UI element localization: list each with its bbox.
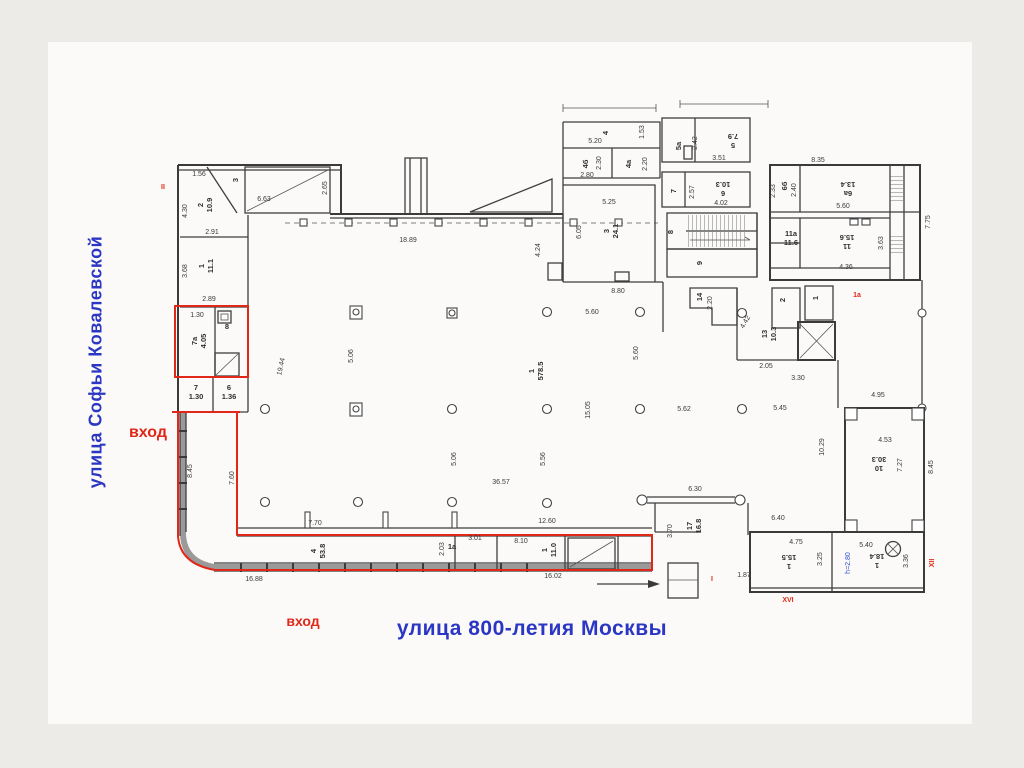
room-label: 1115.6 <box>840 233 855 251</box>
dimension-label: 5.20 <box>588 138 602 145</box>
room-label: 57.9 <box>728 132 738 150</box>
dimension-label: 5.60 <box>633 346 640 360</box>
room-label: 14 <box>695 292 704 301</box>
dimension-label: 5.06 <box>348 349 355 363</box>
room-label: 1 <box>811 296 820 300</box>
dimension-label: 6.30 <box>688 486 702 493</box>
dimension-label: 7.75 <box>925 215 932 229</box>
dimension-label: 4.02 <box>714 200 728 207</box>
dimension-label: 4.75 <box>789 539 803 546</box>
room-label: 7a4.05 <box>190 334 208 349</box>
dimension-label: 2.40 <box>791 183 798 197</box>
dimension-label: 2.80 <box>580 172 594 179</box>
dimension-label: 15.05 <box>585 401 592 419</box>
room-label: 9 <box>695 261 704 265</box>
dimension-label: 1.87 <box>737 572 751 579</box>
dimension-label: 2.03 <box>439 542 446 556</box>
dimension-label: 2.20 <box>642 157 649 171</box>
dimension-label: 3.70 <box>667 524 674 538</box>
dimension-label: 1.30 <box>190 312 204 319</box>
axis-mark: XII <box>929 559 936 568</box>
dimension-label: 8.80 <box>611 288 625 295</box>
floor-plan-svg: 210.9111.137a4.05871.3061.36453.81a111.0… <box>0 0 1024 768</box>
dimension-label: 8.45 <box>187 464 194 478</box>
room-label: 1716.8 <box>685 519 703 534</box>
dimension-label: 2.57 <box>689 185 696 199</box>
room-label: 8 <box>225 322 229 331</box>
dimension-label: 3.36 <box>903 554 910 568</box>
room-label: 4б <box>581 159 590 168</box>
dimension-label: 5.62 <box>677 406 691 413</box>
room-label: 324.1 <box>602 224 620 239</box>
axis-mark: XVI <box>782 597 793 604</box>
room-label: 1030.3 <box>872 455 887 473</box>
dimension-label: 5.45 <box>773 405 787 412</box>
dimension-label: 36.57 <box>492 479 510 486</box>
dimension-label: 2.65 <box>322 181 329 195</box>
dimension-label: 3.63 <box>878 236 885 250</box>
entrance-label-left: вход <box>129 424 167 442</box>
dimension-label: 3.68 <box>182 264 189 278</box>
dimension-label: 12.60 <box>538 518 556 525</box>
room-label: 210.9 <box>196 198 214 213</box>
dimension-label: 2.05 <box>759 363 773 370</box>
room-label: 8 <box>666 230 675 234</box>
room-label: 4 <box>601 130 610 135</box>
dimension-label: 19.44 <box>276 357 287 376</box>
dimension-label: 8.35 <box>811 157 825 164</box>
dimension-label: 7.27 <box>897 458 904 472</box>
dimension-label: 7.70 <box>308 520 322 527</box>
dimension-label: 6.40 <box>771 515 785 522</box>
dimension-label: 8.10 <box>514 538 528 545</box>
dimension-label: 4.30 <box>182 204 189 218</box>
dimension-label: 2.42 <box>692 136 699 150</box>
room-label: 118.4 <box>869 552 884 570</box>
dimension-label: 2.89 <box>202 296 216 303</box>
room-label: 610.3 <box>716 180 731 198</box>
room-label: 5a <box>674 141 683 150</box>
dimension-label: 5.40 <box>859 542 873 549</box>
column-grid <box>261 306 747 508</box>
dimension-label: 3.51 <box>712 155 726 162</box>
dimension-label: 4.36 <box>839 264 853 271</box>
room-label: 111.0 <box>540 543 558 557</box>
dimension-label: 4.95 <box>871 392 885 399</box>
dimension-label: 2.30 <box>596 156 603 170</box>
dimension-label: 8.45 <box>928 460 935 474</box>
room-label: 71.30 <box>189 383 204 401</box>
room-label: 3 <box>231 178 240 182</box>
street-label-bottom: улица 800-летия Москвы <box>397 617 667 641</box>
room-label: 453.8 <box>309 544 327 559</box>
street-label-left: улица Софьи Ковалевской <box>86 236 107 488</box>
room-label: 2 <box>778 298 787 302</box>
dimension-label: 4.53 <box>878 437 892 444</box>
room-label: 4a <box>624 159 633 168</box>
dimension-label: 16.02 <box>544 573 562 580</box>
dimension-label: 5.56 <box>540 452 547 466</box>
room-label: 7 <box>669 189 678 193</box>
room-label: 11a11.6 <box>784 229 798 247</box>
dimension-label: 5.60 <box>836 203 850 210</box>
room-label: 111.1 <box>197 259 215 273</box>
dimension-label: 6.63 <box>257 196 271 203</box>
dimension-label: 4.24 <box>535 243 542 257</box>
dimension-label: 5.06 <box>451 452 458 466</box>
room-label: 6a13.4 <box>840 180 855 198</box>
dimension-label: 3.30 <box>791 375 805 382</box>
dimension-label: 2.20 <box>707 296 714 310</box>
entrance-label-bottom: вход <box>286 613 319 629</box>
dimension-label: 5.60 <box>585 309 599 316</box>
dimension-label: 10.29 <box>819 438 826 456</box>
axis-mark: I <box>711 576 713 583</box>
room-label: 6б <box>780 181 789 190</box>
axis-mark: II <box>161 184 165 191</box>
dimension-label: 1.53 <box>639 125 646 139</box>
room-label: 115.5 <box>782 553 797 571</box>
dimension-label: 7.60 <box>229 471 236 485</box>
dimension-label: 2.33 <box>770 184 777 198</box>
height-note: h=2.80 <box>845 552 852 574</box>
room-label: 1578.5 <box>527 362 545 381</box>
dimension-label: 3.25 <box>817 552 824 566</box>
dimension-label: 3.01 <box>468 535 482 542</box>
dimension-label: 1.56 <box>192 171 206 178</box>
axis-mark: 1a <box>853 292 861 299</box>
room-label: 1a <box>448 542 457 551</box>
room-label: 1310.3 <box>760 327 778 342</box>
dimension-label: 2.91 <box>205 229 219 236</box>
dimension-label: 16.88 <box>245 576 263 583</box>
dimension-label: 18.89 <box>399 237 417 244</box>
red-lease-outline <box>172 306 652 570</box>
dimension-label: 5.25 <box>602 199 616 206</box>
dimension-label: 6.05 <box>576 225 583 239</box>
room-label: 61.36 <box>222 383 237 401</box>
